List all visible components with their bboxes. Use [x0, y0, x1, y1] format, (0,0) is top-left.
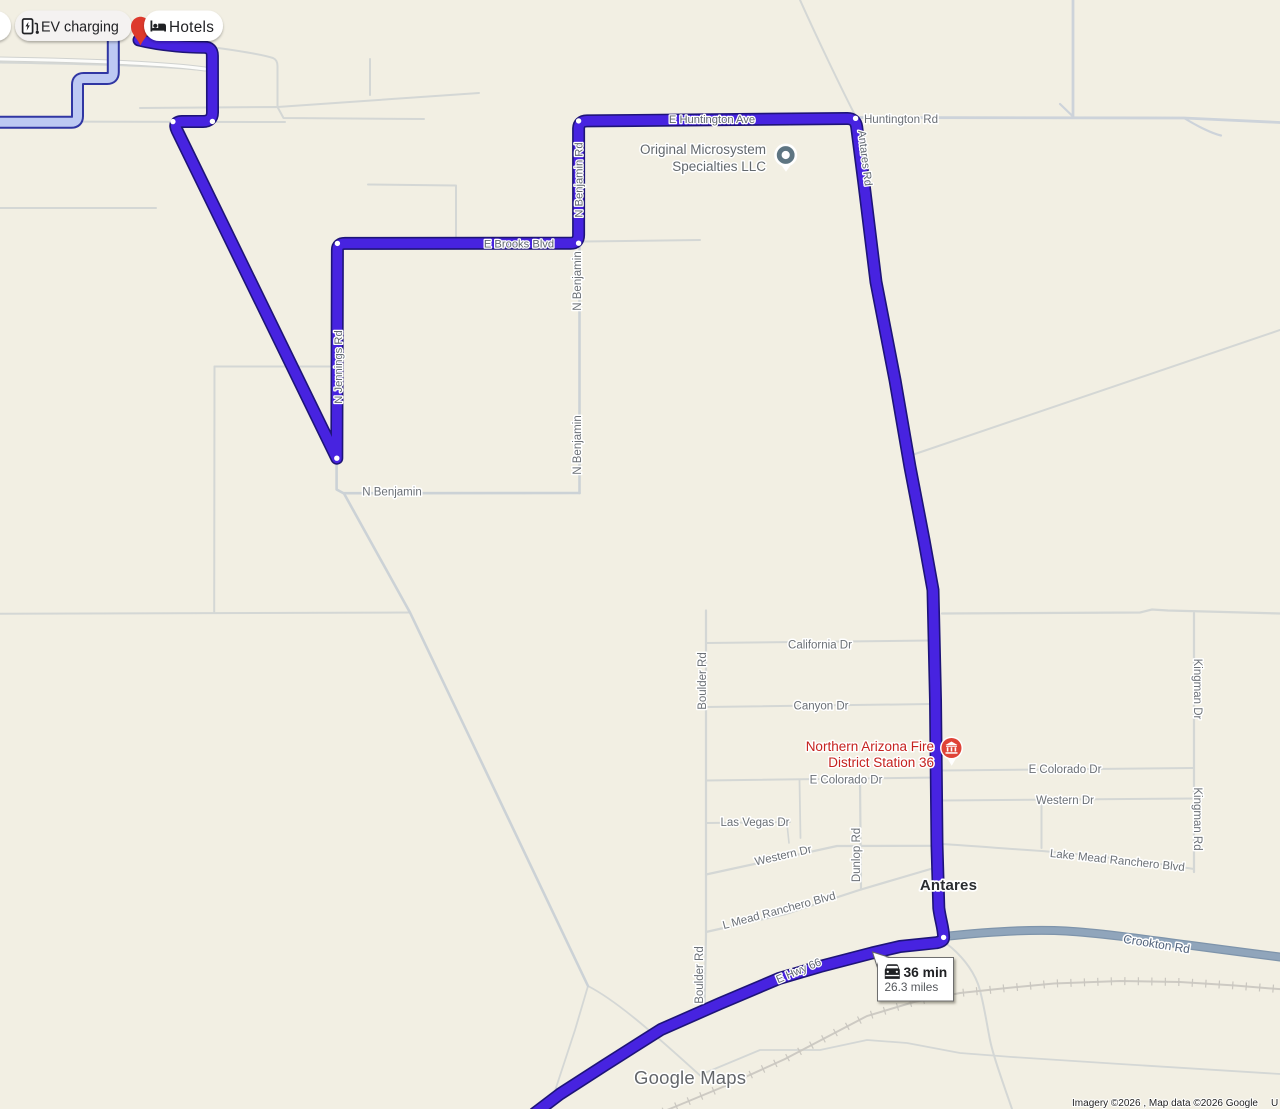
svg-text:Google Maps: Google Maps	[634, 1067, 746, 1088]
svg-text:Specialties LLC: Specialties LLC	[672, 159, 766, 174]
svg-text:N Benjamin Rd: N Benjamin Rd	[574, 142, 586, 217]
svg-text:Antares: Antares	[920, 877, 977, 894]
svg-text:U: U	[1271, 1098, 1278, 1109]
svg-text:Canyon Dr: Canyon Dr	[794, 701, 849, 713]
svg-text:N Benjamin: N Benjamin	[572, 251, 584, 310]
svg-text:Dunlop Rd: Dunlop Rd	[851, 828, 863, 882]
svg-text:E Colorado Dr: E Colorado Dr	[1029, 764, 1102, 776]
svg-text:N Jennings Rd: N Jennings Rd	[333, 330, 345, 403]
svg-text:District Station 36: District Station 36	[828, 755, 934, 770]
svg-text:Original Microsystem: Original Microsystem	[640, 142, 766, 157]
svg-text:Northern Arizona Fire: Northern Arizona Fire	[806, 739, 934, 754]
svg-text:Western Dr: Western Dr	[1036, 795, 1094, 807]
svg-text:Imagery ©2026 , Map data ©2026: Imagery ©2026 , Map data ©2026 Google	[1072, 1098, 1258, 1109]
svg-text:Kingman Rd: Kingman Rd	[1191, 787, 1203, 850]
svg-text:Boulder Rd: Boulder Rd	[697, 652, 709, 710]
svg-text:E Colorado Dr: E Colorado Dr	[810, 775, 883, 787]
svg-text:California Dr: California Dr	[788, 640, 852, 652]
svg-text:Kingman Dr: Kingman Dr	[1191, 659, 1203, 720]
svg-text:26.3 miles: 26.3 miles	[885, 980, 939, 994]
svg-text:36 min: 36 min	[904, 965, 948, 980]
svg-text:N Benjamin: N Benjamin	[362, 487, 421, 499]
svg-text:E Huntington Ave: E Huntington Ave	[669, 114, 755, 126]
svg-text:Hotels: Hotels	[169, 19, 214, 36]
svg-text:Las Vegas Dr: Las Vegas Dr	[720, 817, 789, 829]
svg-text:EV charging: EV charging	[41, 20, 119, 36]
svg-text:E Brooks Blvd: E Brooks Blvd	[484, 239, 554, 251]
svg-text:Huntington Rd: Huntington Rd	[864, 113, 938, 126]
svg-text:N Benjamin: N Benjamin	[572, 415, 584, 474]
svg-text:Boulder Rd: Boulder Rd	[694, 946, 706, 1004]
